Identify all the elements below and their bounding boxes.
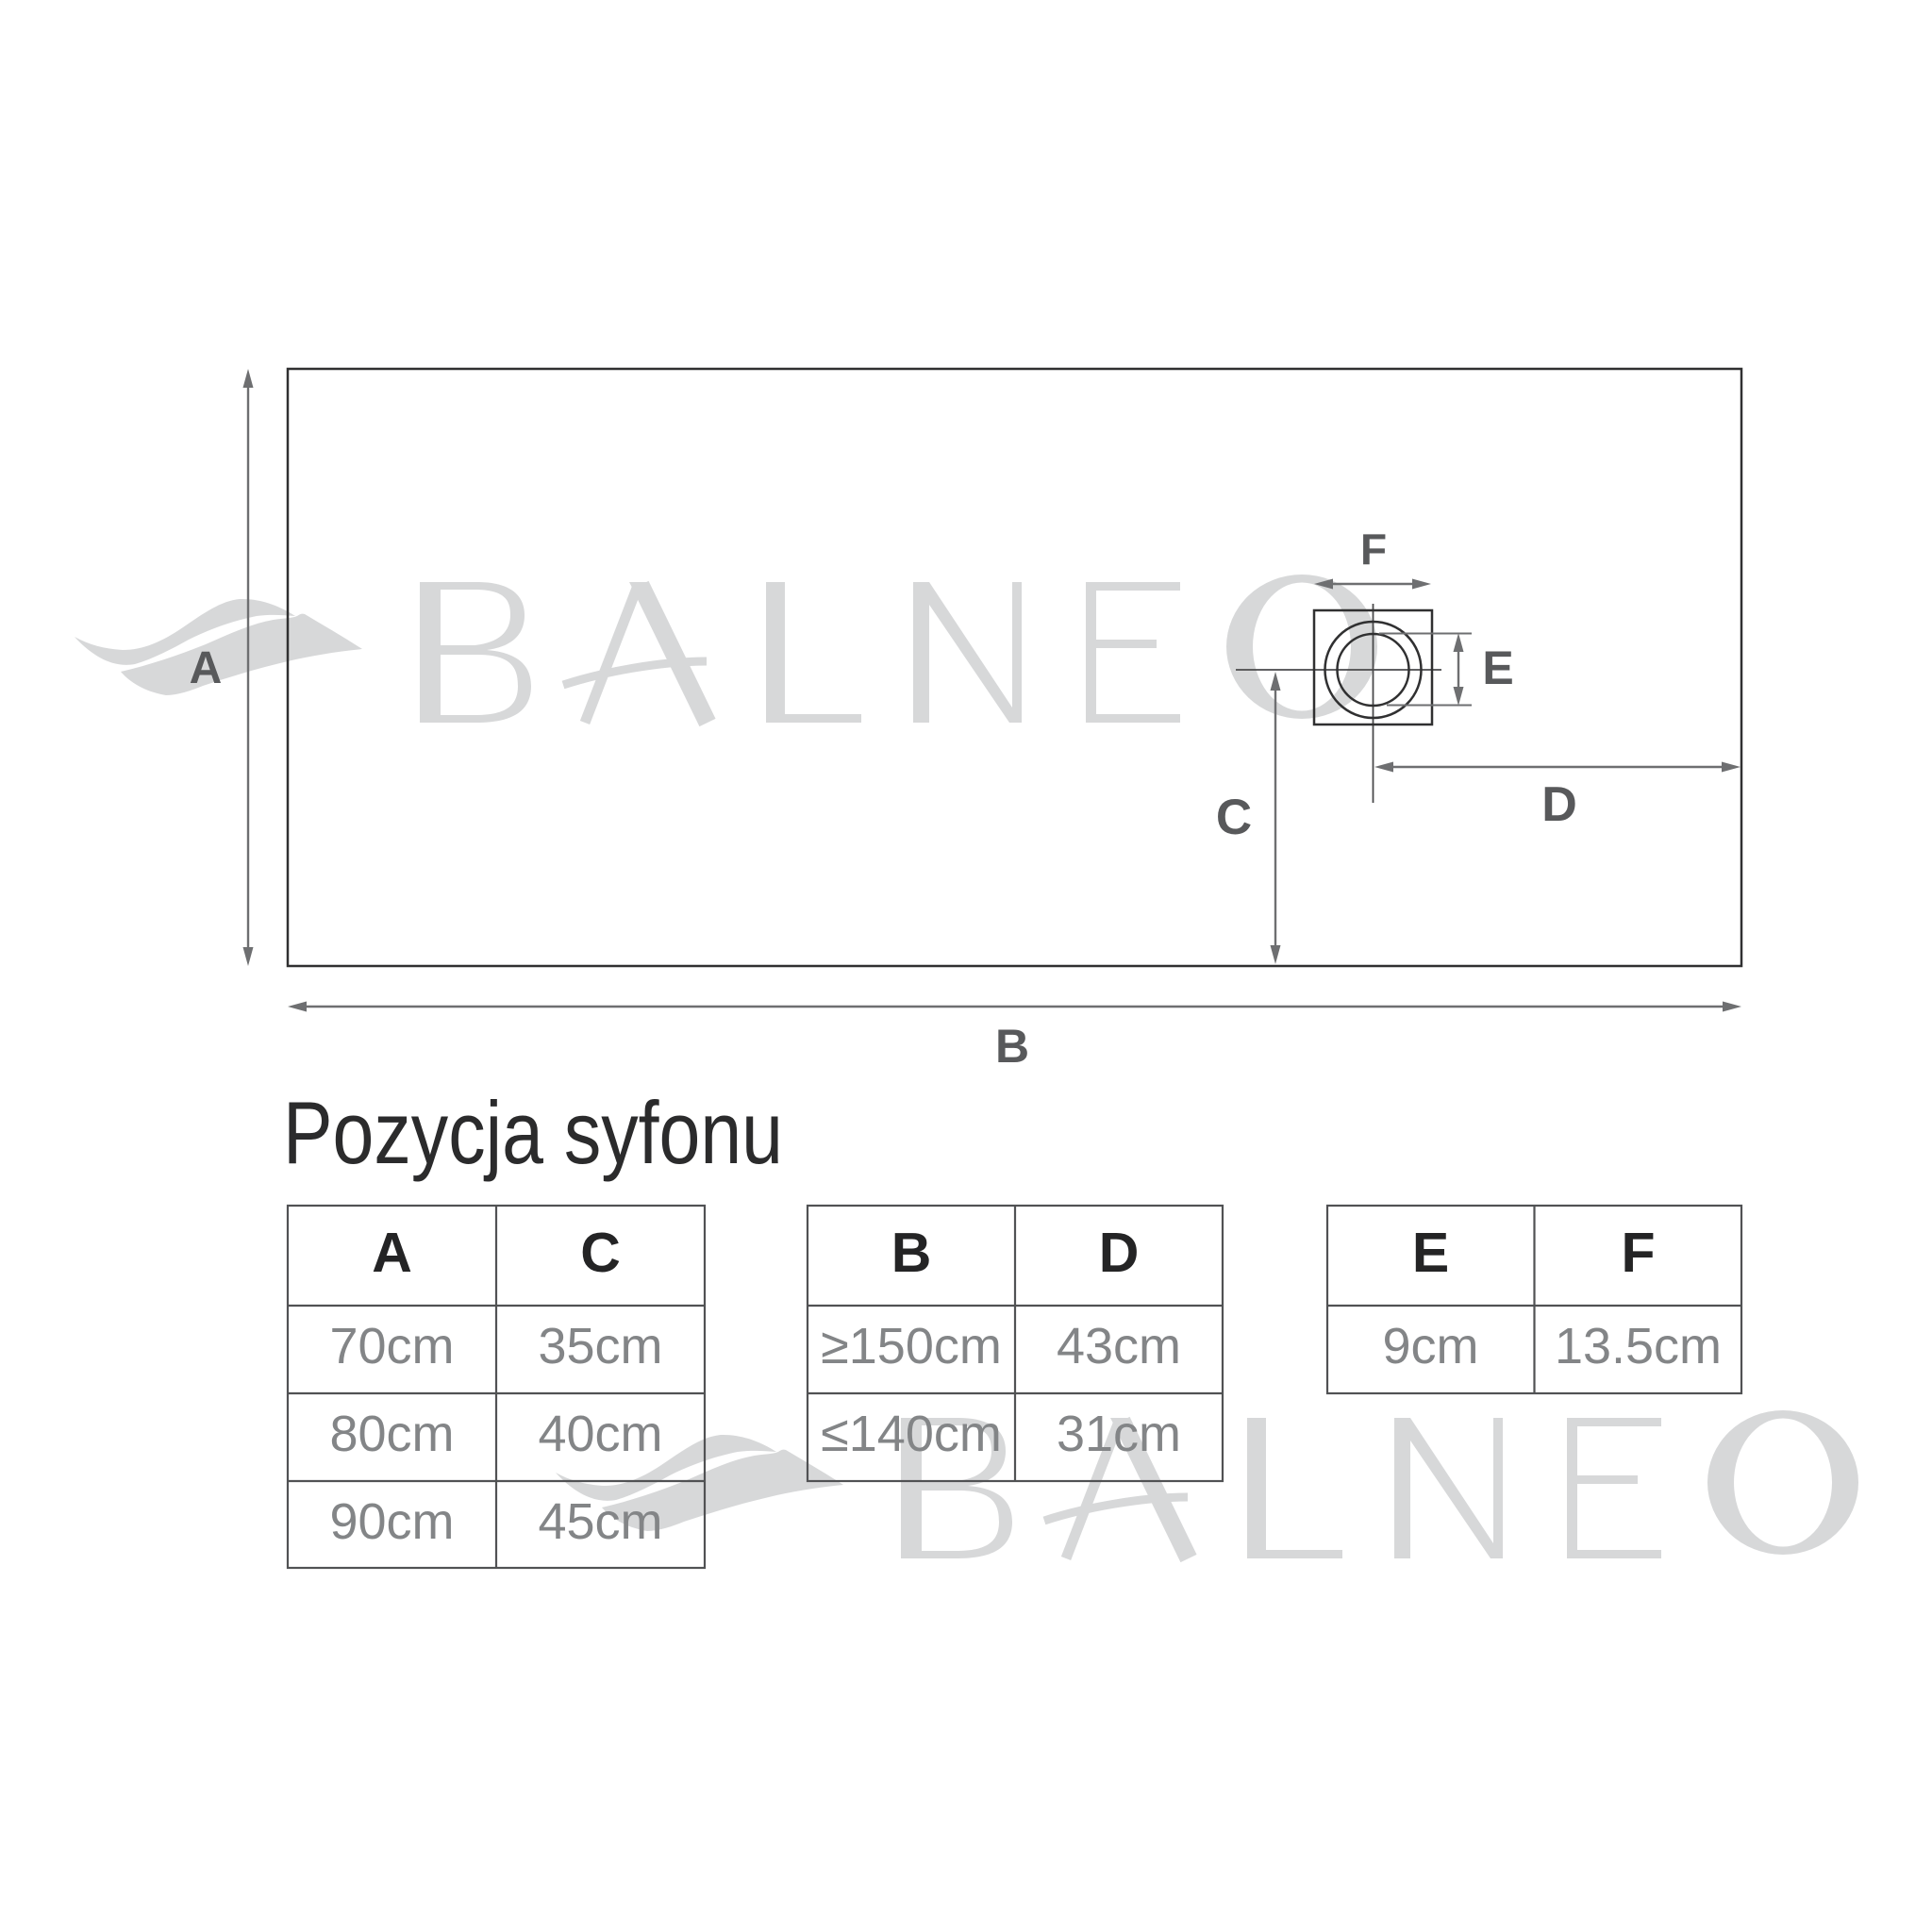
svg-text:31cm: 31cm (1057, 1406, 1181, 1462)
svg-text:C: C (580, 1222, 621, 1284)
svg-text:B: B (995, 1020, 1029, 1073)
svg-text:A: A (190, 643, 223, 693)
svg-text:C: C (1216, 790, 1252, 845)
svg-text:≤140cm: ≤140cm (821, 1406, 1002, 1462)
svg-text:Pozycja syfonu: Pozycja syfonu (283, 1083, 783, 1182)
svg-text:E: E (1412, 1222, 1449, 1284)
svg-text:80cm: 80cm (329, 1406, 454, 1462)
svg-text:70cm: 70cm (329, 1318, 454, 1374)
svg-text:35cm: 35cm (538, 1318, 662, 1374)
svg-text:45cm: 45cm (538, 1493, 662, 1550)
svg-text:9cm: 9cm (1382, 1318, 1478, 1374)
svg-text:90cm: 90cm (329, 1493, 454, 1550)
svg-text:D: D (1099, 1222, 1140, 1284)
svg-text:F: F (1360, 525, 1387, 574)
svg-text:E: E (1482, 641, 1513, 694)
svg-text:40cm: 40cm (538, 1406, 662, 1462)
svg-text:A: A (372, 1222, 412, 1284)
svg-text:43cm: 43cm (1057, 1318, 1181, 1374)
svg-text:D: D (1541, 777, 1577, 832)
svg-text:13.5cm: 13.5cm (1555, 1318, 1722, 1374)
svg-text:≥150cm: ≥150cm (821, 1318, 1002, 1374)
svg-text:F: F (1621, 1222, 1655, 1284)
svg-text:B: B (891, 1222, 932, 1284)
